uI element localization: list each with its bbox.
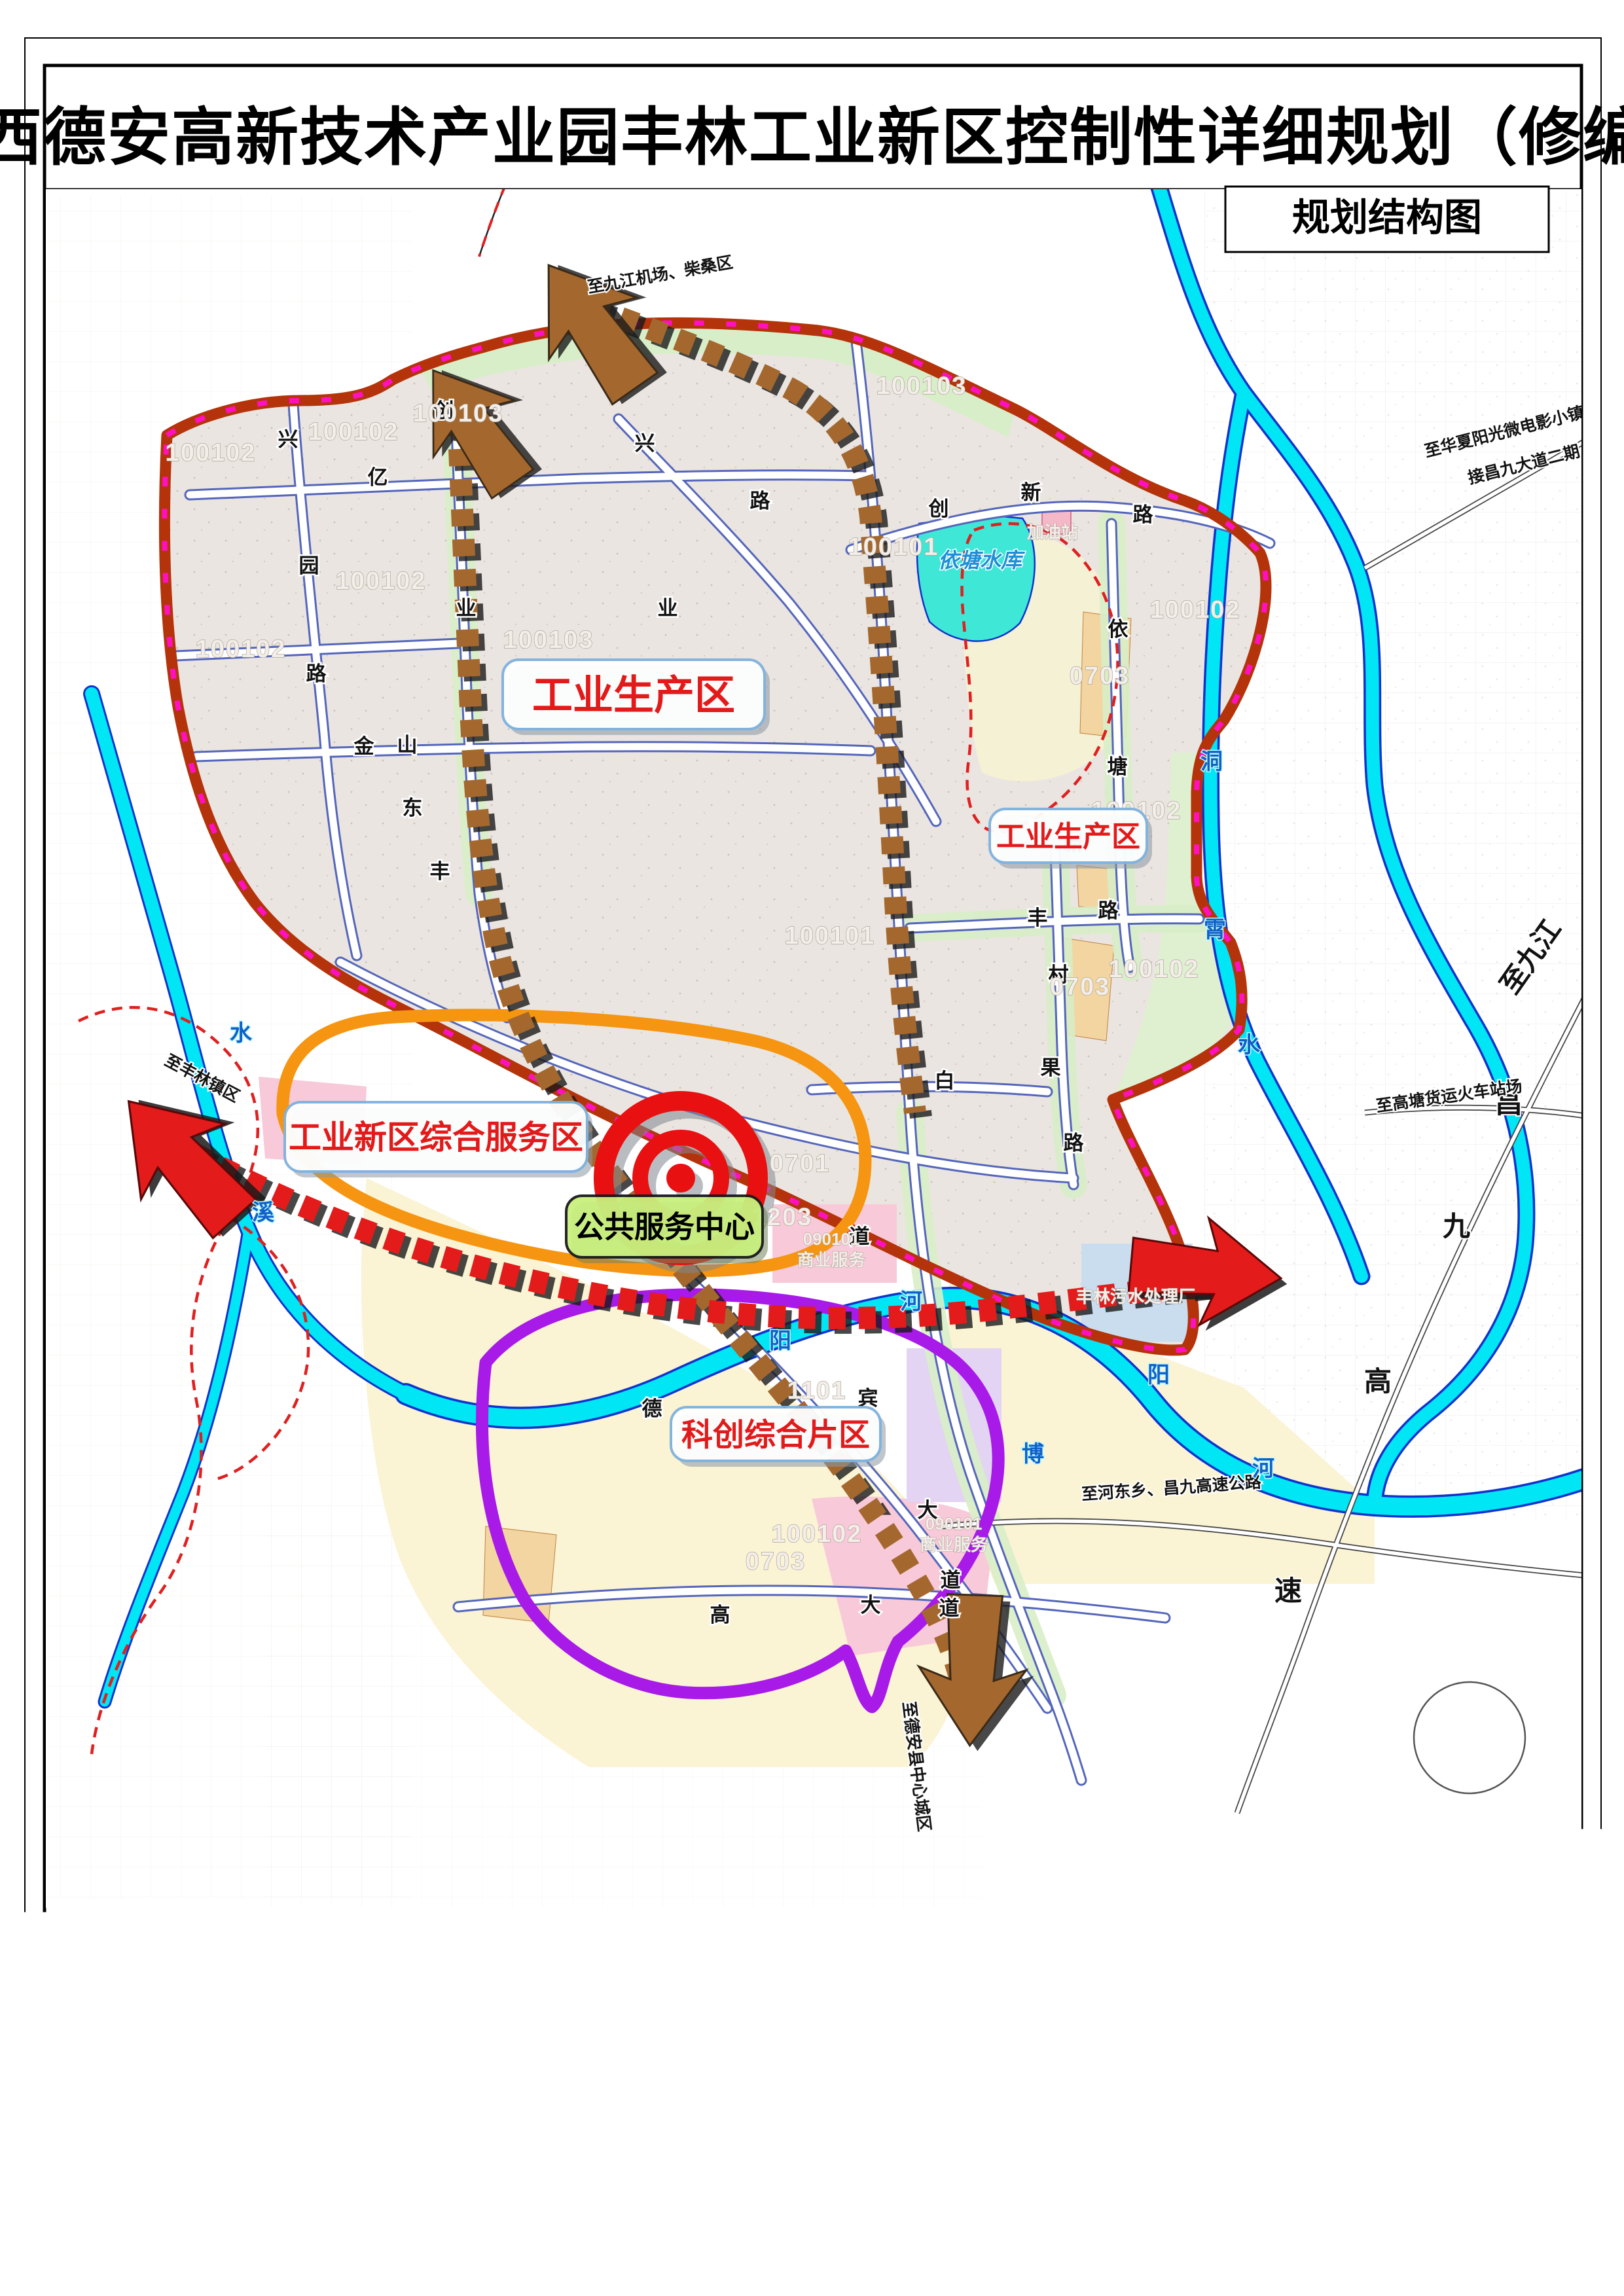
zone-label: 公共服务中心 [566, 1196, 768, 1263]
zone-label-text: 工业新区综合服务区 [289, 1119, 583, 1156]
map-annotation: 高 [710, 1604, 731, 1626]
map-annotation: 业 [658, 597, 678, 620]
map-annotation: 金 [353, 735, 375, 758]
map-annotation: 100103 [503, 626, 594, 654]
map-annotation: 商业服务 [920, 1535, 988, 1554]
map-annotation: 路 [750, 490, 771, 512]
map-annotation: 0703 [1070, 662, 1130, 690]
zone-label: 工业新区综合服务区 [285, 1102, 592, 1177]
scale-bar [1392, 2126, 1544, 2138]
map-annotation: 园 [299, 554, 319, 577]
map-annotation: 0701 [770, 1150, 831, 1177]
map-annotation: 丰 [430, 860, 450, 883]
map-annotation: 兴 [278, 428, 298, 451]
map-annotation: 依 [1108, 618, 1128, 641]
svg-text:0: 0 [1387, 2104, 1397, 2123]
map-annotation: 100103 [413, 400, 504, 427]
map-annotation: 加油站 [1027, 522, 1078, 542]
map-annotation: 水 [1238, 1033, 1261, 1058]
map-annotation: 100102 [1150, 596, 1241, 624]
map-annotation: 创 [928, 497, 949, 520]
plan-sheet: 江西德安高新技术产业园丰林工业新区控制性详细规划（修编） [0, 0, 1624, 2296]
map-annotation: 100103 [876, 372, 967, 400]
svg-text:50: 50 [1401, 2142, 1421, 2161]
map-annotation: 洞 [1200, 749, 1223, 774]
map-annotation: 依塘水库 [938, 548, 1026, 572]
map-annotation: 0703 [746, 1548, 806, 1575]
zone-label: 工业生产区 [503, 660, 770, 735]
svg-text:100: 100 [1415, 2104, 1445, 2123]
map-annotation: 路 [306, 662, 327, 685]
map-annotation: 路 [1098, 899, 1119, 922]
map-annotation: 090101 [926, 1514, 983, 1534]
map-annotation: 100101 [785, 922, 876, 950]
map-annotation: 兴 [635, 432, 655, 455]
zone-label-text: 工业生产区 [532, 673, 735, 718]
map-annotation: 0703 [1050, 973, 1111, 1001]
map-annotation: 阳 [1147, 1363, 1170, 1388]
map-annotation: 090101 [803, 1229, 860, 1249]
map-annotation: 水 [230, 1021, 253, 1046]
map-annotation: 东 [403, 797, 423, 819]
page-number: 02 [1522, 2199, 1570, 2248]
map-annotation: 商业服务 [797, 1250, 865, 1270]
map-annotation: 丰 [1028, 906, 1048, 929]
map-annotation: 高 [1364, 1366, 1392, 1397]
legend-char-top: 图 [65, 1960, 102, 2001]
map-annotation: 新 [1021, 481, 1041, 504]
map-annotation: 路 [1064, 1132, 1085, 1155]
map-annotation: 100102 [308, 418, 399, 446]
map-annotation: 业 [456, 597, 477, 620]
map-annotation: 大 [861, 1594, 881, 1617]
sheet-title: 江西德安高新技术产业园丰林工业新区控制性详细规划（修编） [0, 103, 1624, 173]
legend-concept: 一中心，三轴四区 [216, 2034, 635, 2089]
map-title-box: 规划结构图 [1225, 187, 1549, 252]
map-annotation: 博 [1022, 1442, 1044, 1467]
map-annotation: 果 [1041, 1056, 1061, 1079]
zone-label: 工业生产区 [990, 809, 1152, 869]
map-annotation: 阳 [769, 1329, 791, 1354]
map-annotation: 速 [1274, 1575, 1302, 1606]
svg-text:200: 200 [1453, 2142, 1483, 2161]
map-annotation: 100102 [166, 439, 257, 467]
map-annotation: 丰林污水处理厂 [1076, 1287, 1195, 1306]
map-annotation: 路 [1133, 503, 1154, 526]
zone-label: 科创综合片区 [671, 1407, 886, 1467]
map-annotation: 溪 [252, 1200, 275, 1225]
svg-text:400(m): 400(m) [1523, 2104, 1579, 2123]
legend-char-bottom: 例 [65, 2100, 102, 2142]
map-annotation: 河 [900, 1289, 922, 1314]
map-annotation: 100102 [772, 1520, 863, 1548]
map-annotation: 河 [1252, 1456, 1274, 1481]
map-annotation: 亿 [368, 466, 388, 489]
map-annotation: 白 [935, 1069, 955, 1092]
north-label: N [1455, 1920, 1477, 1954]
zone-label-text: 公共服务中心 [574, 1210, 755, 1244]
map-annotation: 100102 [1109, 956, 1200, 983]
map-annotation: 100101 [848, 533, 939, 561]
map-area[interactable]: 至九江机场、柴桑区至华夏阳光微电影小镇接昌九大道二期至九江昌九高速至高塘货运火车… [46, 86, 1620, 1908]
map-annotation: 100102 [196, 636, 287, 663]
map-annotation: 山 [397, 734, 418, 757]
map-annotation: 100102 [336, 567, 427, 595]
map-annotation: 九 [1443, 1211, 1470, 1242]
zone-label-text: 工业生产区 [996, 821, 1140, 853]
map-annotation: 塘 [1108, 755, 1128, 778]
plan-map-svg: 江西德安高新技术产业园丰林工业新区控制性详细规划（修编） [0, 0, 1624, 2296]
map-annotation: 道 [939, 1597, 960, 1620]
map-annotation: 霄 [1204, 918, 1226, 942]
map-title-text: 规划结构图 [1292, 196, 1482, 239]
map-annotation: 道 [941, 1569, 961, 1592]
map-annotation: 1101 [787, 1377, 846, 1405]
map-annotation: 德 [642, 1397, 662, 1420]
zone-label-text: 科创综合片区 [681, 1418, 870, 1452]
